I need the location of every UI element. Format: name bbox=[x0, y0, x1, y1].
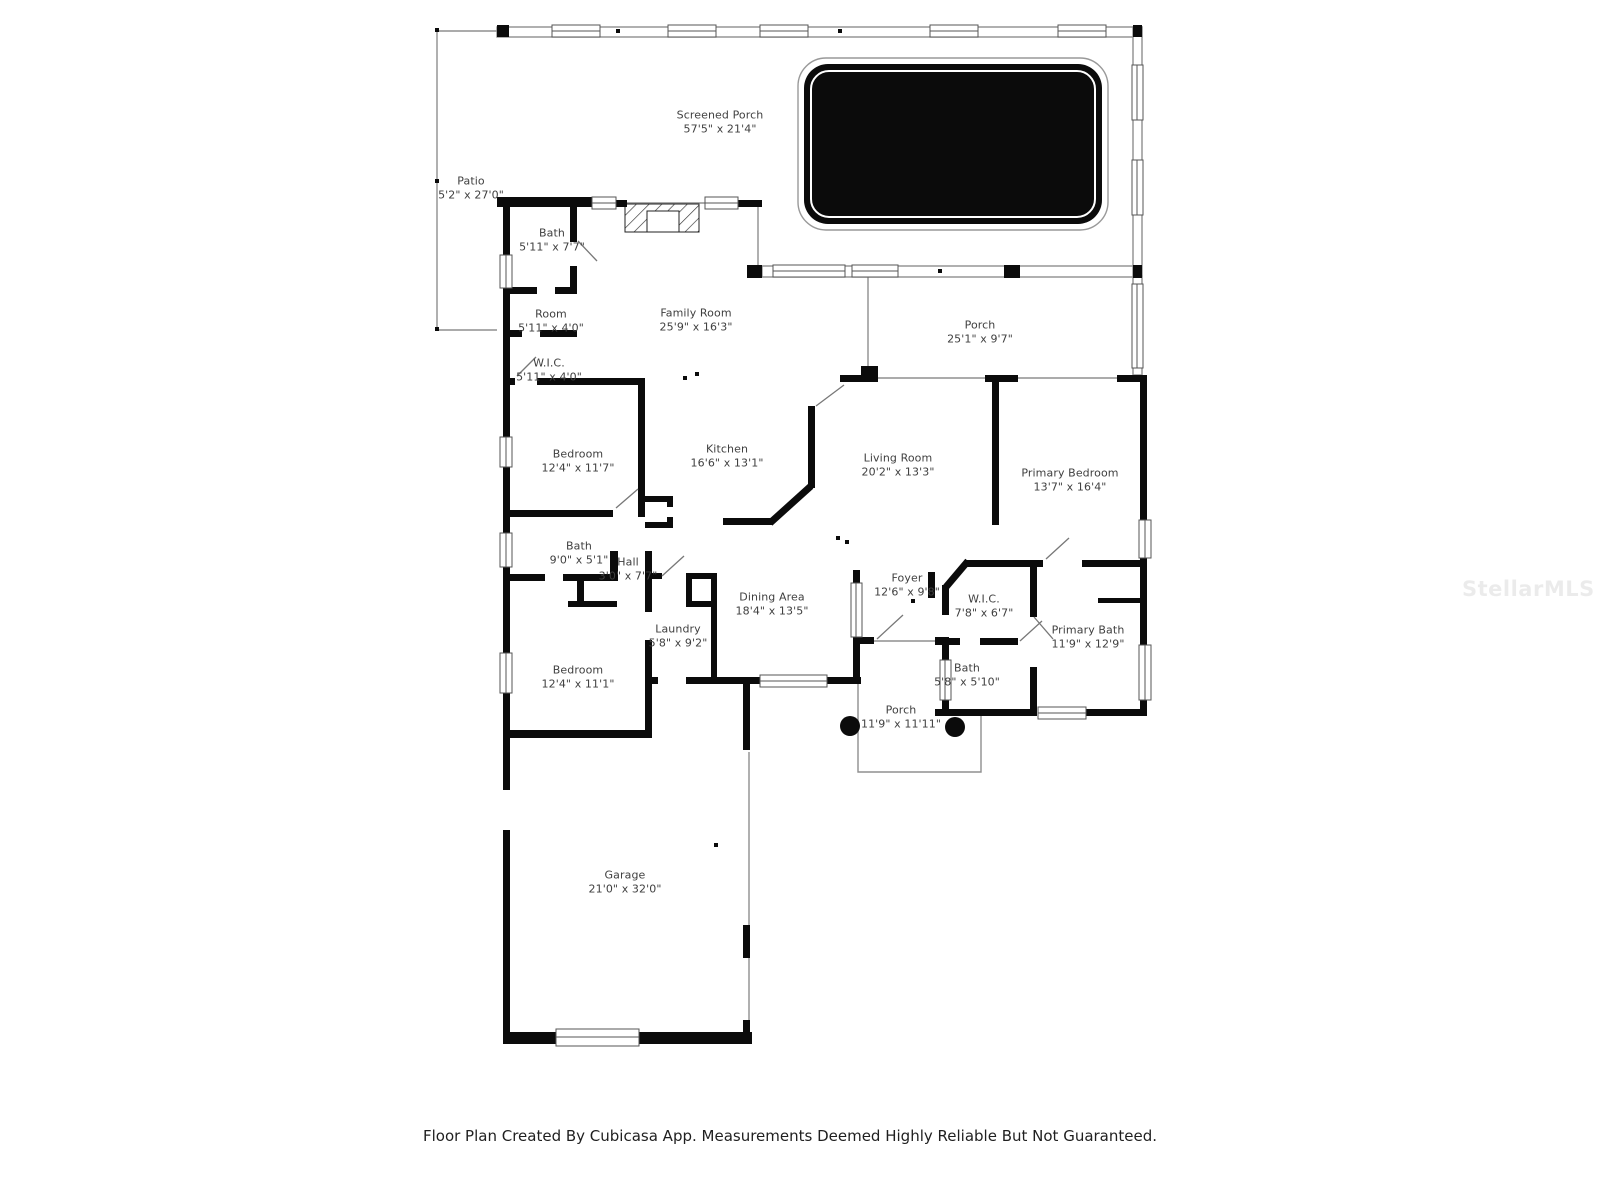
room-dimensions: 5'8" x 5'10" bbox=[934, 675, 1000, 689]
porch-column bbox=[840, 716, 860, 736]
room-label-living-room: Living Room20'2" x 13'3" bbox=[862, 452, 935, 479]
room-name: Screened Porch bbox=[677, 109, 764, 123]
window bbox=[1038, 707, 1086, 719]
room-dimensions: 57'5" x 21'4" bbox=[677, 122, 764, 136]
window bbox=[500, 533, 512, 567]
room-dimensions: 11'9" x 11'11" bbox=[861, 717, 941, 731]
window bbox=[1058, 25, 1106, 37]
room-dimensions: 20'2" x 13'3" bbox=[862, 465, 935, 479]
room-label-primary-bath: Primary Bath11'9" x 12'9" bbox=[1052, 624, 1125, 651]
room-dimensions: 5'2" x 27'0" bbox=[438, 188, 504, 202]
room-dimensions: 5'11" x 4'0" bbox=[516, 370, 582, 384]
window bbox=[705, 197, 738, 209]
screened-porch-right-wall bbox=[1133, 27, 1142, 276]
window bbox=[1139, 645, 1151, 700]
room-label-laundry: Laundry5'8" x 9'2" bbox=[649, 623, 708, 650]
room-label-bath-1: Bath5'11" x 7'7" bbox=[519, 227, 585, 254]
room-label-wic-2: W.I.C.7'8" x 6'7" bbox=[955, 593, 1014, 620]
room-name: Porch bbox=[861, 704, 941, 718]
room-name: Dining Area bbox=[736, 591, 809, 605]
window bbox=[1132, 65, 1143, 120]
room-dimensions: 13'7" x 16'4" bbox=[1021, 480, 1118, 494]
room-name: Porch bbox=[947, 319, 1013, 333]
room-label-patio: Patio5'2" x 27'0" bbox=[438, 175, 504, 202]
porch-column bbox=[945, 717, 965, 737]
window bbox=[760, 25, 808, 37]
room-dimensions: 18'4" x 13'5" bbox=[736, 604, 809, 618]
window bbox=[552, 25, 600, 37]
room-label-porch-1: Porch25'1" x 9'7" bbox=[947, 319, 1013, 346]
floor-plan-page: Screened Porch57'5" x 21'4"Patio5'2" x 2… bbox=[0, 0, 1600, 1200]
window bbox=[1132, 160, 1143, 215]
fireplace bbox=[625, 203, 705, 232]
room-name: Patio bbox=[438, 175, 504, 189]
room-name: Primary Bedroom bbox=[1021, 467, 1118, 481]
room-name: W.I.C. bbox=[955, 593, 1014, 607]
window bbox=[500, 437, 512, 467]
window bbox=[592, 197, 616, 209]
room-name: Kitchen bbox=[691, 443, 764, 457]
room-label-porch-2: Porch11'9" x 11'11" bbox=[861, 704, 941, 731]
pool bbox=[798, 58, 1108, 230]
room-label-wic-1: W.I.C.5'11" x 4'0" bbox=[516, 357, 582, 384]
room-name: Room bbox=[518, 308, 584, 322]
room-name: Bath bbox=[550, 540, 609, 554]
stellar-mls-watermark: StellarMLS bbox=[1462, 577, 1595, 601]
room-dimensions: 16'6" x 13'1" bbox=[691, 456, 764, 470]
room-name: Family Room bbox=[660, 307, 733, 321]
room-label-garage: Garage21'0" x 32'0" bbox=[589, 869, 662, 896]
room-dimensions: 5'11" x 4'0" bbox=[518, 321, 584, 335]
room-label-bath-3: Bath5'8" x 5'10" bbox=[934, 662, 1000, 689]
room-name: Hall bbox=[599, 556, 658, 570]
room-dimensions: 12'4" x 11'7" bbox=[542, 461, 615, 475]
window bbox=[930, 25, 978, 37]
garage-door bbox=[556, 1029, 639, 1046]
window bbox=[668, 25, 716, 37]
window bbox=[760, 675, 827, 687]
room-name: Bedroom bbox=[542, 448, 615, 462]
room-name: Laundry bbox=[649, 623, 708, 637]
disclaimer-text: Floor Plan Created By Cubicasa App. Meas… bbox=[0, 1127, 1580, 1145]
room-label-screened-porch: Screened Porch57'5" x 21'4" bbox=[677, 109, 764, 136]
room-label-room: Room5'11" x 4'0" bbox=[518, 308, 584, 335]
room-label-kitchen: Kitchen16'6" x 13'1" bbox=[691, 443, 764, 470]
room-name: W.I.C. bbox=[516, 357, 582, 371]
room-label-dining-area: Dining Area18'4" x 13'5" bbox=[736, 591, 809, 618]
room-name: Foyer bbox=[874, 572, 940, 586]
room-dimensions: 7'8" x 6'7" bbox=[955, 606, 1014, 620]
room-dimensions: 25'9" x 16'3" bbox=[660, 320, 733, 334]
room-name: Garage bbox=[589, 869, 662, 883]
window bbox=[852, 265, 898, 277]
pool-water bbox=[804, 64, 1102, 224]
room-label-foyer: Foyer12'6" x 9'8" bbox=[874, 572, 940, 599]
room-dimensions: 5'8" x 9'2" bbox=[649, 636, 708, 650]
room-dimensions: 11'9" x 12'9" bbox=[1052, 637, 1125, 651]
room-name: Living Room bbox=[862, 452, 935, 466]
window bbox=[1132, 284, 1143, 368]
room-name: Bath bbox=[519, 227, 585, 241]
room-label-bedroom-2: Bedroom12'4" x 11'1" bbox=[542, 664, 615, 691]
window bbox=[1139, 520, 1151, 558]
room-name: Bath bbox=[934, 662, 1000, 676]
room-name: Bedroom bbox=[542, 664, 615, 678]
window bbox=[500, 653, 512, 693]
room-dimensions: 5'11" x 7'7" bbox=[519, 240, 585, 254]
window bbox=[851, 583, 862, 637]
window bbox=[500, 255, 512, 288]
room-dimensions: 12'4" x 11'1" bbox=[542, 677, 615, 691]
room-name: Primary Bath bbox=[1052, 624, 1125, 638]
room-label-family-room: Family Room25'9" x 16'3" bbox=[660, 307, 733, 334]
room-label-bedroom-1: Bedroom12'4" x 11'7" bbox=[542, 448, 615, 475]
room-dimensions: 21'0" x 32'0" bbox=[589, 882, 662, 896]
window bbox=[773, 265, 845, 277]
room-dimensions: 25'1" x 9'7" bbox=[947, 332, 1013, 346]
room-dimensions: 12'6" x 9'8" bbox=[874, 585, 940, 599]
room-label-hall: Hall3'0" x 7'7" bbox=[599, 556, 658, 583]
room-label-primary-bedroom: Primary Bedroom13'7" x 16'4" bbox=[1021, 467, 1118, 494]
room-dimensions: 3'0" x 7'7" bbox=[599, 569, 658, 583]
